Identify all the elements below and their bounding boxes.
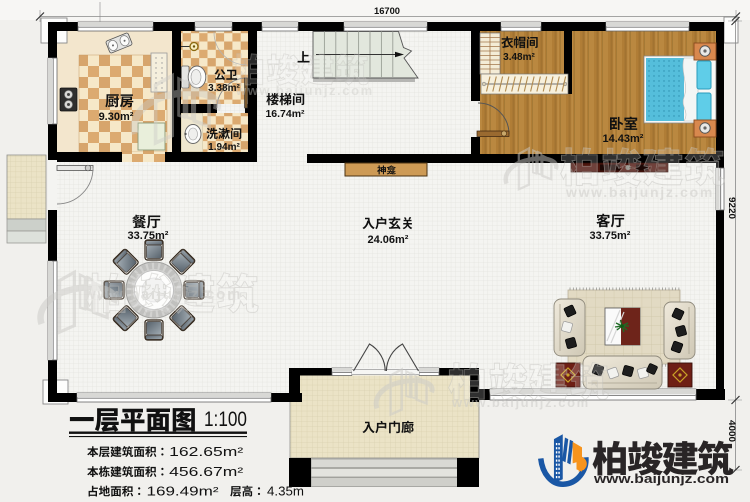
- svg-text:www.baijunjz.com: www.baijunjz.com: [565, 184, 714, 200]
- svg-text:9.30m²: 9.30m²: [99, 111, 134, 123]
- svg-text:3.48m²: 3.48m²: [503, 52, 535, 63]
- svg-text:4000: 4000: [726, 420, 737, 442]
- svg-text:4.35m: 4.35m: [267, 484, 304, 499]
- svg-text:www.baijunjz.com: www.baijunjz.com: [235, 83, 374, 98]
- svg-text:169.49m²: 169.49m²: [147, 484, 220, 499]
- svg-text:www.baijunjz.com: www.baijunjz.com: [83, 286, 242, 303]
- svg-text:16700: 16700: [374, 6, 400, 17]
- svg-text:456.67m²: 456.67m²: [169, 464, 244, 479]
- svg-text:162.65m²: 162.65m²: [169, 444, 244, 459]
- svg-text:1:100: 1:100: [204, 407, 247, 431]
- svg-text:24.06m²: 24.06m²: [368, 234, 409, 246]
- svg-text:14.43m²: 14.43m²: [603, 133, 644, 145]
- svg-text:16.74m²: 16.74m²: [265, 108, 305, 120]
- svg-text:www.baijunjz.com: www.baijunjz.com: [451, 395, 590, 410]
- svg-text:3.38m²: 3.38m²: [208, 83, 240, 94]
- svg-text:9220: 9220: [726, 197, 737, 219]
- svg-text:www.baijunjz.com: www.baijunjz.com: [593, 471, 729, 486]
- svg-text:1.94m²: 1.94m²: [208, 142, 240, 153]
- svg-text:33.75m²: 33.75m²: [590, 230, 631, 242]
- svg-text:33.75m²: 33.75m²: [128, 230, 169, 242]
